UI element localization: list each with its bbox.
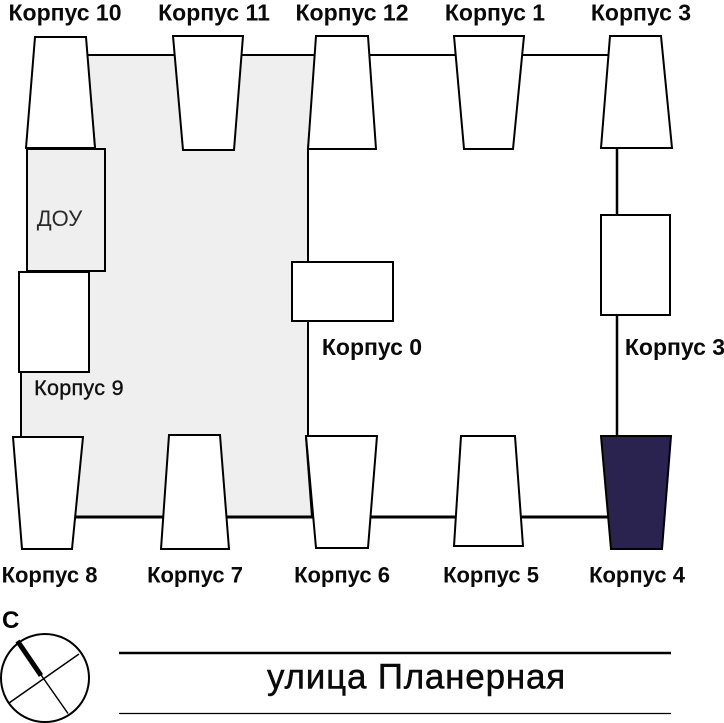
- svg-text:Корпус 3: Корпус 3: [591, 0, 691, 25]
- svg-text:улица Планерная: улица Планерная: [267, 658, 566, 697]
- svg-text:Корпус 3: Корпус 3: [625, 334, 724, 360]
- svg-text:Корпус 6: Корпус 6: [294, 563, 390, 588]
- svg-text:Корпус 1: Корпус 1: [445, 0, 545, 25]
- svg-text:Корпус 0: Корпус 0: [322, 334, 422, 360]
- svg-text:Корпус 7: Корпус 7: [147, 563, 243, 588]
- svg-text:Корпус 8: Корпус 8: [2, 563, 98, 588]
- svg-text:ДОУ: ДОУ: [37, 206, 84, 231]
- svg-text:Корпус 11: Корпус 11: [158, 0, 270, 25]
- svg-text:Корпус 12: Корпус 12: [295, 0, 408, 25]
- svg-text:Корпус 10: Корпус 10: [8, 0, 121, 25]
- svg-text:Корпус 9: Корпус 9: [34, 376, 124, 400]
- svg-text:С: С: [2, 607, 19, 634]
- svg-text:Корпус 4: Корпус 4: [589, 563, 686, 588]
- svg-text:Корпус 5: Корпус 5: [443, 563, 539, 588]
